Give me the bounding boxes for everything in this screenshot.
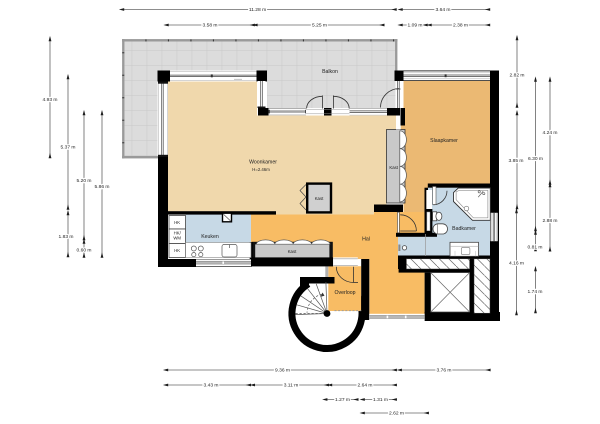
svg-text:3.43 m: 3.43 m	[204, 383, 219, 389]
svg-text:0.81 m: 0.81 m	[528, 245, 543, 251]
svg-text:Kast: Kast	[389, 165, 398, 170]
svg-text:HK: HK	[174, 248, 180, 253]
svg-text:Badkamer: Badkamer	[452, 226, 476, 232]
svg-text:1.09 m: 1.09 m	[408, 23, 423, 29]
svg-text:5.37 m: 5.37 m	[61, 145, 76, 151]
svg-text:3.85 m: 3.85 m	[509, 158, 524, 164]
svg-text:Kast: Kast	[288, 249, 297, 254]
svg-text:Kast: Kast	[315, 196, 324, 201]
svg-text:5.86 m: 5.86 m	[95, 184, 110, 190]
svg-text:Woonkamer: Woonkamer	[249, 159, 277, 165]
svg-text:H=2.46m: H=2.46m	[252, 167, 270, 172]
svg-text:4.93 m: 4.93 m	[43, 97, 58, 103]
svg-text:9.36 m: 9.36 m	[275, 368, 290, 374]
svg-text:5.20 m: 5.20 m	[77, 178, 92, 184]
svg-text:2.38 m: 2.38 m	[453, 23, 468, 29]
svg-text:2.88 m: 2.88 m	[543, 218, 558, 224]
svg-text:2.64 m: 2.64 m	[358, 383, 373, 389]
svg-text:2.82 m: 2.82 m	[510, 73, 525, 79]
svg-text:3.11 m: 3.11 m	[284, 383, 299, 389]
svg-text:2.62 m: 2.62 m	[389, 411, 404, 417]
svg-text:Hal: Hal	[362, 236, 370, 242]
svg-text:Keuken: Keuken	[201, 234, 219, 240]
svg-text:1.27 m: 1.27 m	[335, 397, 350, 403]
svg-text:4.16 m: 4.16 m	[509, 261, 524, 267]
svg-text:0.60 m: 0.60 m	[77, 248, 92, 254]
svg-text:3.64 m: 3.64 m	[436, 7, 451, 13]
svg-text:1.74 m: 1.74 m	[528, 289, 543, 295]
svg-text:6.30 m: 6.30 m	[528, 156, 543, 162]
svg-text:1.83 m: 1.83 m	[59, 234, 74, 240]
svg-text:3.58 m: 3.58 m	[203, 23, 218, 29]
svg-text:1.31 m: 1.31 m	[373, 397, 388, 403]
svg-text:4.24 m: 4.24 m	[543, 130, 558, 136]
svg-text:Slaapkamer: Slaapkamer	[430, 138, 458, 144]
svg-text:Overloop: Overloop	[334, 290, 355, 296]
svg-text:5.25 m: 5.25 m	[312, 23, 327, 29]
svg-text:Balkon: Balkon	[322, 69, 338, 75]
svg-text:HK: HK	[174, 220, 180, 225]
svg-text:WM: WM	[173, 235, 181, 240]
svg-text:3.76 m: 3.76 m	[437, 368, 452, 374]
svg-text:11.28 m: 11.28 m	[249, 7, 266, 13]
